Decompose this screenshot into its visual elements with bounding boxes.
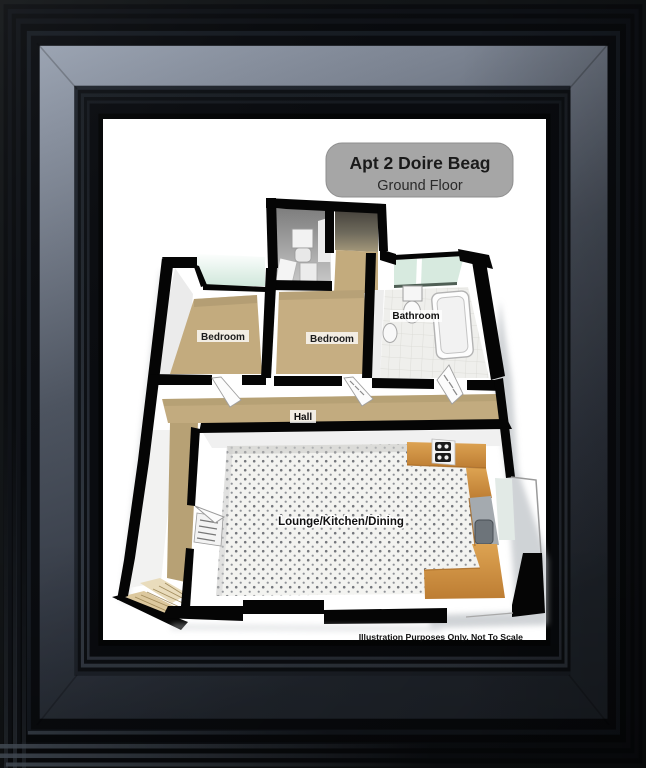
svg-text:Lounge/Kitchen/Dining: Lounge/Kitchen/Dining bbox=[278, 516, 404, 528]
svg-text:Bathroom: Bathroom bbox=[392, 311, 439, 322]
svg-text:Apt 2 Doire Beag: Apt 2 Doire Beag bbox=[350, 153, 491, 173]
svg-text:Bedroom: Bedroom bbox=[310, 334, 354, 345]
svg-text:Illustration Purposes Only. No: Illustration Purposes Only. Not To Scale bbox=[359, 632, 523, 642]
svg-text:Ground Floor: Ground Floor bbox=[377, 178, 463, 194]
svg-text:Bedroom: Bedroom bbox=[201, 332, 245, 343]
svg-text:Hall: Hall bbox=[294, 412, 313, 423]
